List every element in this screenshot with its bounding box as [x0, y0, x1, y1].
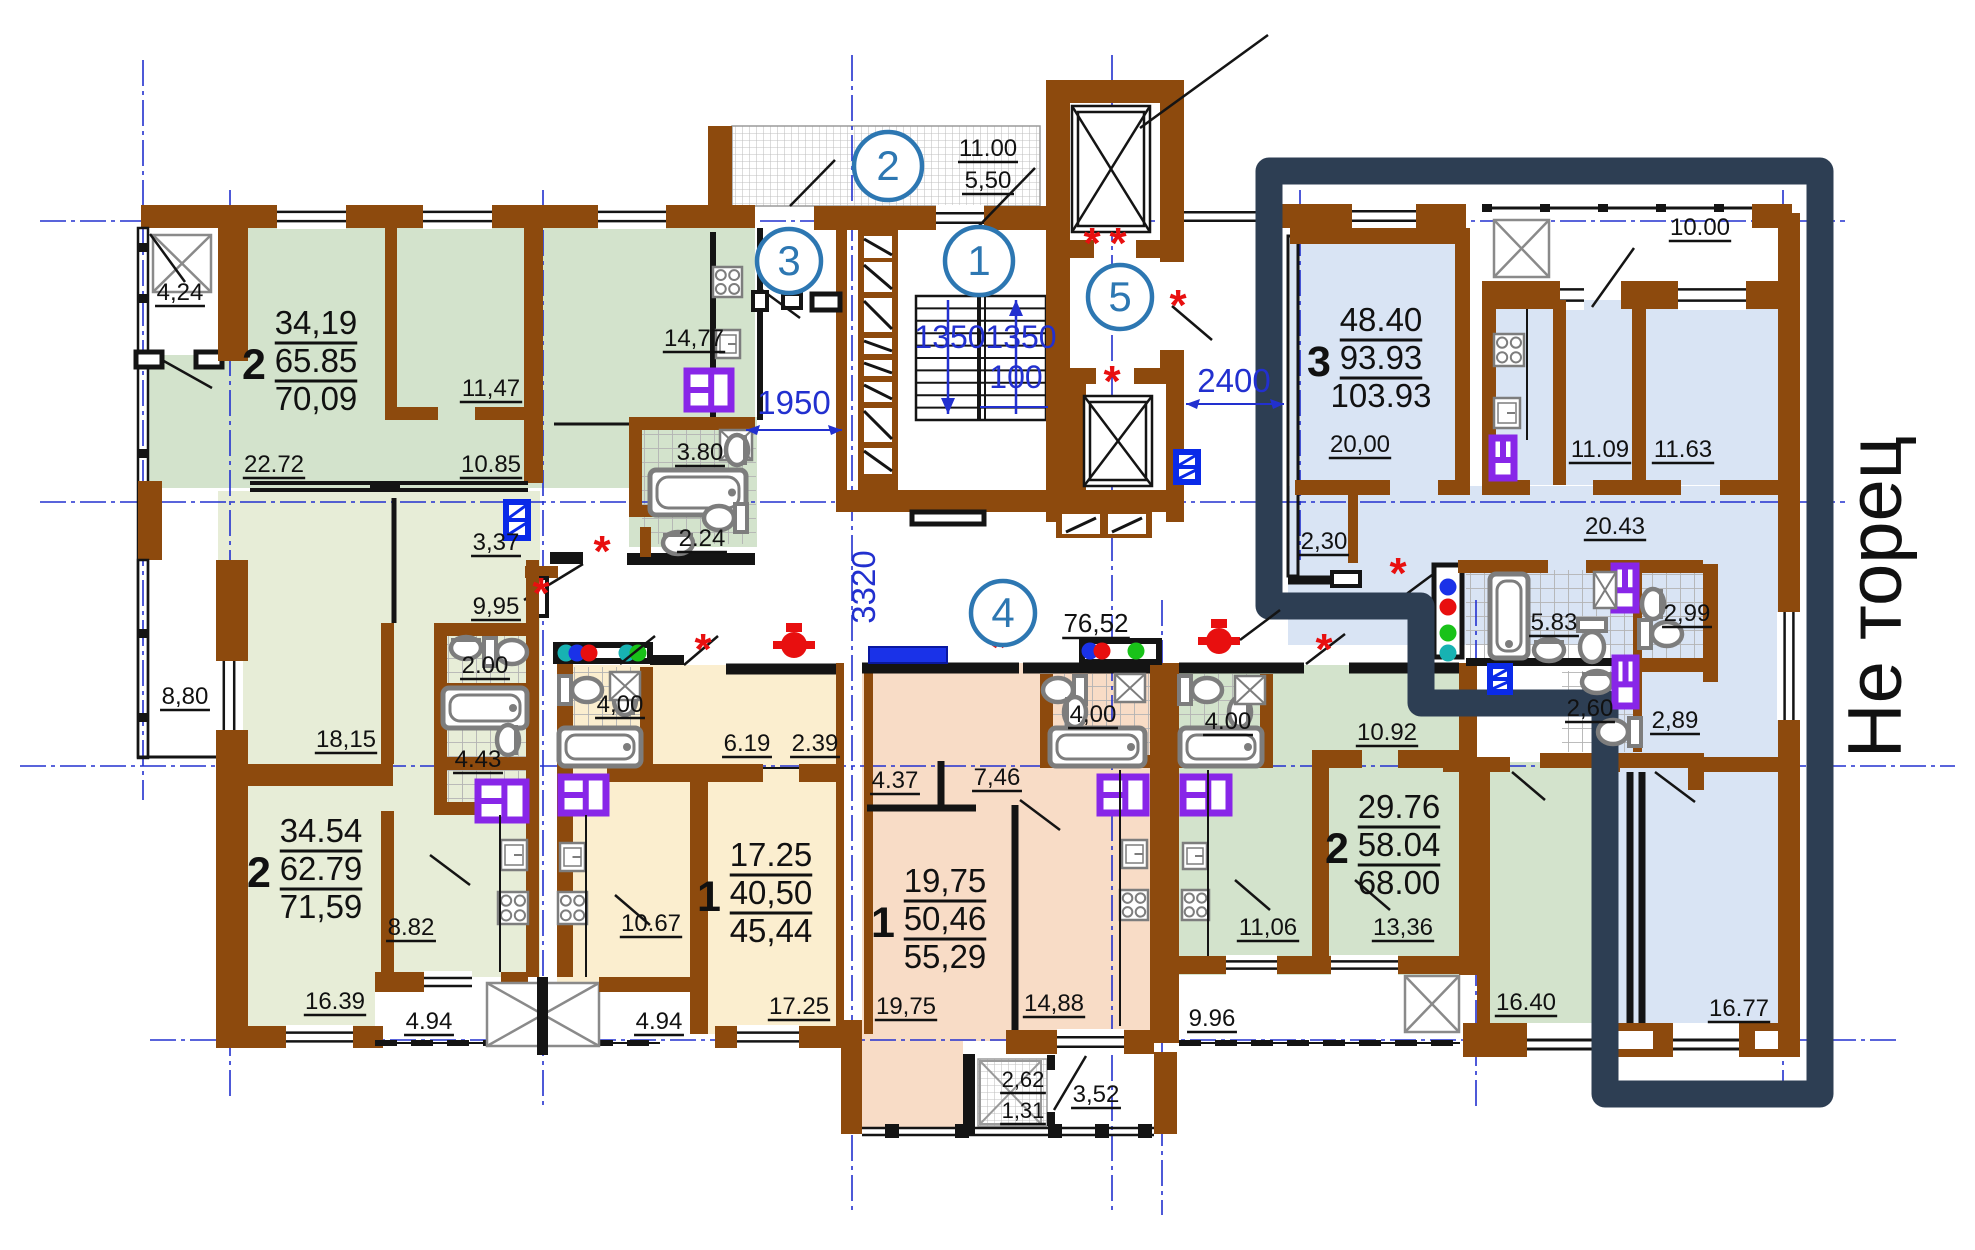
svg-text:4: 4: [991, 589, 1014, 636]
svg-text:18,15: 18,15: [316, 726, 376, 753]
svg-text:19,75: 19,75: [904, 862, 987, 899]
svg-text:1350: 1350: [985, 319, 1056, 355]
svg-text:*: *: [532, 569, 550, 618]
svg-text:16.39: 16.39: [305, 988, 365, 1015]
svg-text:2,62: 2,62: [1002, 1067, 1045, 1092]
svg-text:2,89: 2,89: [1652, 707, 1699, 734]
svg-text:34.54: 34.54: [280, 812, 363, 849]
svg-text:1,31: 1,31: [1002, 1098, 1045, 1123]
svg-text:4.94: 4.94: [636, 1008, 683, 1035]
svg-text:1: 1: [967, 237, 990, 284]
svg-text:14,77: 14,77: [664, 325, 724, 352]
svg-text:2.00: 2.00: [462, 652, 509, 679]
svg-text:55,29: 55,29: [904, 938, 987, 975]
svg-text:11.09: 11.09: [1571, 436, 1629, 463]
svg-text:*: *: [1169, 281, 1187, 330]
svg-text:3.80: 3.80: [677, 439, 724, 466]
svg-text:17.25: 17.25: [769, 993, 829, 1020]
svg-text:4,00: 4,00: [1070, 701, 1117, 728]
svg-text:11.63: 11.63: [1654, 436, 1712, 463]
svg-text:6.19: 6.19: [724, 730, 771, 757]
svg-text:*: *: [1315, 625, 1333, 674]
svg-text:20,00: 20,00: [1330, 431, 1390, 458]
svg-text:17.25: 17.25: [730, 836, 813, 873]
svg-text:1: 1: [697, 873, 721, 921]
svg-text:5.83: 5.83: [1531, 609, 1578, 636]
svg-text:50,46: 50,46: [904, 900, 987, 937]
svg-text:9,95: 9,95: [473, 593, 520, 620]
svg-text:22.72: 22.72: [244, 451, 304, 478]
svg-text:3320: 3320: [845, 550, 882, 623]
svg-text:3,52: 3,52: [1073, 1081, 1120, 1108]
svg-text:71,59: 71,59: [280, 888, 363, 925]
svg-text:4.43: 4.43: [455, 746, 502, 773]
svg-text:48.40: 48.40: [1340, 301, 1423, 338]
svg-text:100: 100: [989, 359, 1042, 395]
svg-text:11,06: 11,06: [1239, 914, 1297, 941]
svg-text:14,88: 14,88: [1024, 990, 1084, 1017]
svg-text:45,44: 45,44: [730, 912, 813, 949]
svg-text:*: *: [593, 527, 611, 576]
svg-text:Не торец: Не торец: [1833, 436, 1918, 759]
svg-text:19,75: 19,75: [876, 993, 936, 1020]
svg-text:2,30: 2,30: [1301, 528, 1348, 555]
svg-text:2,60: 2,60: [1567, 695, 1614, 722]
svg-text:10.85: 10.85: [461, 451, 521, 478]
svg-text:93.93: 93.93: [1340, 339, 1423, 376]
svg-text:16.77: 16.77: [1709, 995, 1769, 1022]
svg-text:68.00: 68.00: [1358, 864, 1441, 901]
svg-text:8,80: 8,80: [162, 683, 209, 710]
svg-text:10.92: 10.92: [1357, 719, 1417, 746]
svg-text:40,50: 40,50: [730, 874, 813, 911]
svg-text:103.93: 103.93: [1331, 377, 1432, 414]
svg-text:8.82: 8.82: [388, 914, 435, 941]
svg-text:3: 3: [1307, 338, 1331, 386]
svg-text:4.00: 4.00: [1205, 708, 1252, 735]
svg-text:10.67: 10.67: [621, 910, 681, 937]
svg-text:4,00: 4,00: [597, 691, 644, 718]
svg-text:4.37: 4.37: [872, 767, 919, 794]
svg-text:11.00: 11.00: [959, 135, 1017, 162]
svg-text:2.39: 2.39: [792, 730, 839, 757]
svg-text:58.04: 58.04: [1358, 826, 1441, 863]
svg-text:1950: 1950: [757, 384, 830, 421]
svg-text:4,24: 4,24: [157, 279, 204, 306]
svg-text:13,36: 13,36: [1373, 914, 1433, 941]
svg-text:34,19: 34,19: [275, 304, 358, 341]
svg-text:70,09: 70,09: [275, 380, 358, 417]
svg-text:20.43: 20.43: [1585, 513, 1645, 540]
svg-text:5,50: 5,50: [965, 167, 1012, 194]
svg-text:3,37: 3,37: [473, 529, 520, 556]
svg-text:10.00: 10.00: [1670, 214, 1730, 241]
svg-text:7,46: 7,46: [974, 764, 1021, 791]
svg-text:2,99: 2,99: [1664, 600, 1711, 627]
svg-text:9.96: 9.96: [1189, 1005, 1236, 1032]
svg-text:1350: 1350: [914, 319, 985, 355]
svg-text:*: *: [1083, 219, 1101, 268]
svg-text:2: 2: [1325, 825, 1349, 873]
svg-text:*: *: [1109, 219, 1127, 268]
svg-text:2: 2: [876, 142, 899, 189]
svg-text:2: 2: [247, 849, 271, 897]
svg-text:29.76: 29.76: [1358, 788, 1441, 825]
svg-text:11,47: 11,47: [462, 375, 520, 402]
svg-text:*: *: [694, 625, 712, 674]
svg-text:2400: 2400: [1197, 362, 1270, 399]
svg-text:16.40: 16.40: [1496, 989, 1556, 1016]
svg-text:4.94: 4.94: [406, 1008, 453, 1035]
svg-text:3: 3: [777, 237, 800, 284]
svg-text:*: *: [1103, 357, 1121, 406]
svg-text:5: 5: [1108, 273, 1131, 320]
svg-text:2: 2: [242, 341, 266, 389]
svg-text:62.79: 62.79: [280, 850, 363, 887]
svg-text:2.24: 2.24: [679, 525, 726, 552]
svg-text:1: 1: [871, 899, 895, 947]
svg-text:*: *: [1389, 549, 1407, 598]
svg-text:76,52: 76,52: [1063, 608, 1128, 638]
svg-text:65.85: 65.85: [275, 342, 358, 379]
